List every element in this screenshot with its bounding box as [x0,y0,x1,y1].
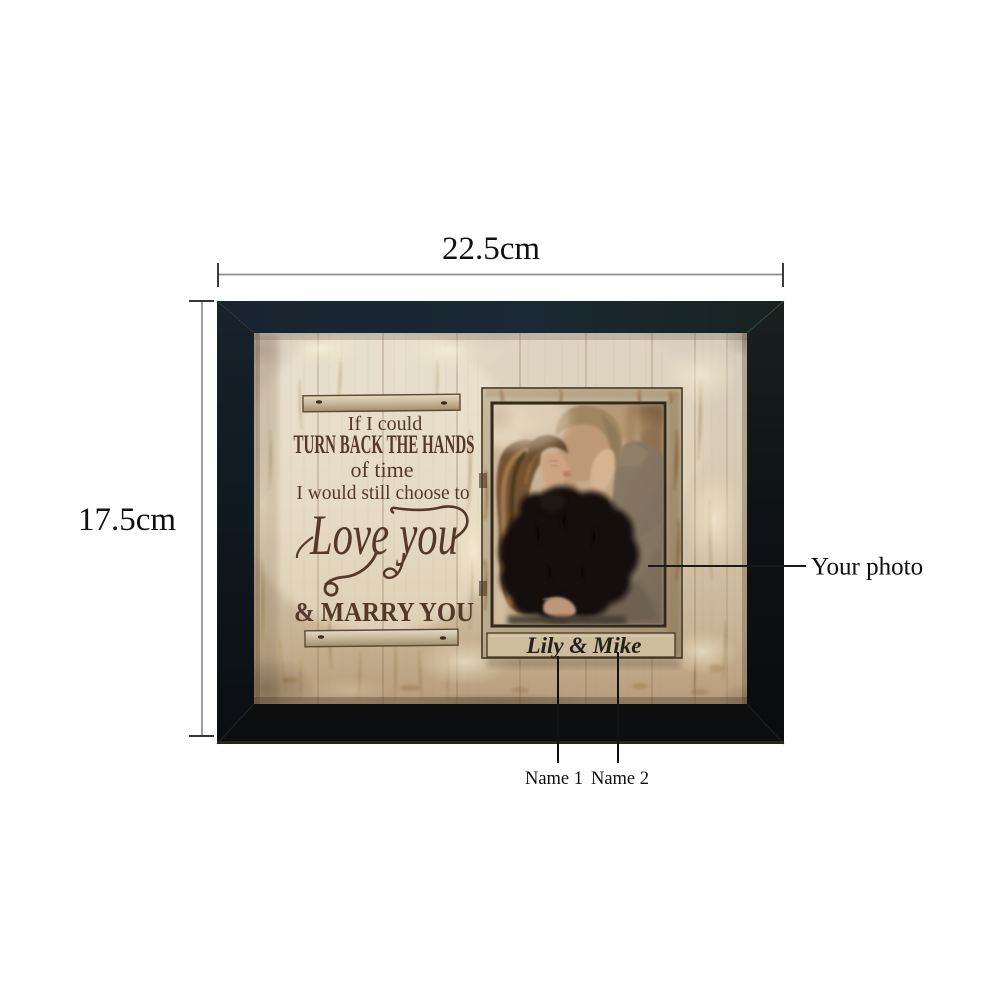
svg-text:TURN BACK THE HANDS: TURN BACK THE HANDS [294,430,475,459]
svg-text:22.5cm: 22.5cm [442,231,540,267]
svg-text:Name 2: Name 2 [591,769,649,789]
svg-text:& MARRY YOU: & MARRY YOU [294,597,474,627]
svg-text:Your photo: Your photo [811,554,923,581]
svg-text:Love you: Love you [309,504,458,567]
svg-text:I would still choose to: I would still choose to [296,483,469,504]
svg-text:Name 1: Name 1 [525,769,583,789]
svg-text:of time: of time [351,457,414,482]
svg-text:17.5cm: 17.5cm [78,502,176,538]
svg-text:Lily & Mike: Lily & Mike [526,633,642,658]
